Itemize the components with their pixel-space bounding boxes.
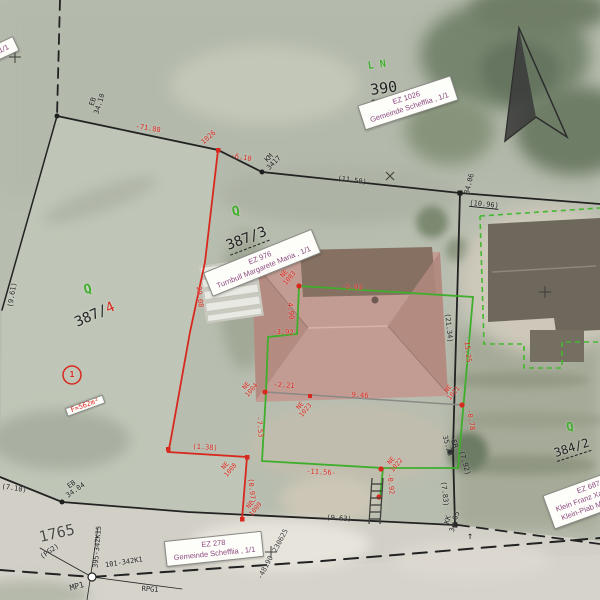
aerial-basemap bbox=[0, 0, 600, 600]
carport bbox=[198, 258, 264, 324]
cadastral-plan-map[interactable]: 390L N387/3F=725m²Q387/4Q1F=562m²384/2Q1… bbox=[0, 0, 600, 600]
main-house-roof bbox=[252, 247, 448, 402]
